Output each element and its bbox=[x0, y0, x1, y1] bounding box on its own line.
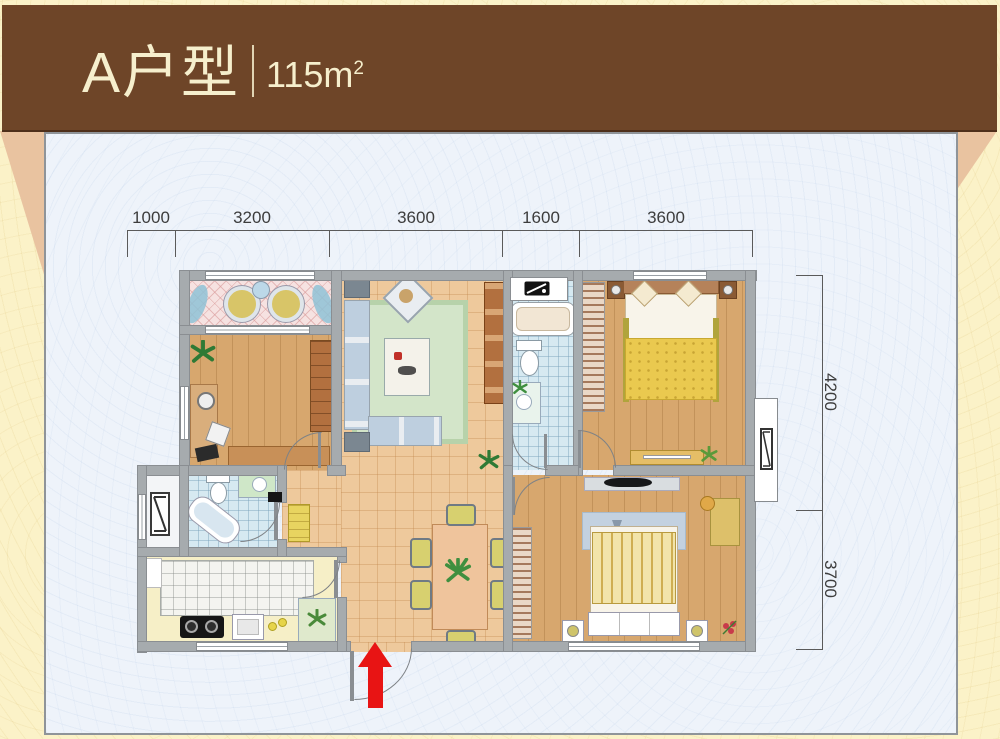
dim-tick bbox=[175, 230, 176, 257]
loveseat bbox=[368, 416, 442, 446]
armchair-pillow bbox=[399, 289, 413, 303]
wall bbox=[332, 271, 341, 475]
sofa-row bbox=[344, 300, 370, 430]
window bbox=[180, 386, 189, 440]
dim-tick bbox=[329, 230, 330, 257]
coffee-table-item bbox=[394, 352, 402, 360]
nightstand bbox=[686, 620, 708, 642]
wall bbox=[328, 466, 345, 475]
dim-tick bbox=[752, 230, 753, 257]
balcony-chair bbox=[268, 286, 304, 322]
wall bbox=[504, 271, 512, 475]
wall bbox=[278, 540, 286, 556]
area-label: 115m2 bbox=[266, 54, 364, 96]
sink-basin bbox=[516, 394, 532, 410]
title-divider bbox=[252, 45, 254, 97]
balcony-door-window bbox=[205, 326, 310, 334]
ac-unit-icon bbox=[150, 492, 170, 536]
washer-icon bbox=[524, 281, 550, 296]
bed-footboard bbox=[588, 612, 680, 636]
dining-chair bbox=[410, 580, 432, 610]
second-wardrobe bbox=[509, 527, 532, 639]
bathtub-inner bbox=[516, 307, 570, 331]
dim-tick bbox=[796, 510, 822, 511]
master-tv-stand bbox=[630, 450, 704, 465]
kitchen-unit bbox=[144, 558, 162, 588]
shoe-cabinet bbox=[288, 504, 310, 542]
wall bbox=[138, 466, 282, 475]
ribbon-fold-right bbox=[956, 131, 997, 191]
wall bbox=[180, 466, 188, 556]
bathtub bbox=[511, 302, 575, 336]
wall bbox=[504, 466, 512, 651]
dining-chair bbox=[446, 504, 476, 526]
wall bbox=[180, 271, 189, 475]
balcony-table bbox=[252, 281, 270, 299]
second-bed bbox=[560, 512, 708, 640]
kitchen-plant-stand bbox=[298, 598, 336, 644]
fruit bbox=[268, 622, 277, 631]
desk-lamp bbox=[700, 496, 715, 511]
side-table bbox=[344, 280, 370, 298]
floorplan-page: A户型 115m2 1000 3200 3600 1600 3600 4200 … bbox=[0, 0, 1000, 739]
lamp bbox=[567, 625, 579, 637]
dining-plant-icon bbox=[444, 558, 472, 586]
plant-icon bbox=[190, 340, 216, 366]
bed-blanket bbox=[625, 338, 717, 400]
tv-icon bbox=[604, 478, 652, 487]
entry-arrow-icon bbox=[358, 642, 392, 667]
bed-blanket-striped bbox=[592, 532, 676, 604]
fruit bbox=[278, 618, 287, 627]
master-wardrobe bbox=[581, 282, 605, 412]
study-bookshelf bbox=[310, 340, 332, 432]
ribbon-fold-left bbox=[0, 131, 46, 281]
kitchen-sink bbox=[232, 614, 264, 640]
dim-label-3600b: 3600 bbox=[636, 208, 696, 228]
kitchen-counter-top bbox=[160, 560, 314, 616]
window bbox=[138, 494, 146, 540]
burner bbox=[205, 620, 218, 633]
dim-label-3600a: 3600 bbox=[386, 208, 446, 228]
dim-tick bbox=[127, 230, 128, 257]
wall bbox=[138, 548, 346, 556]
dim-label-3200: 3200 bbox=[222, 208, 282, 228]
dim-tick bbox=[796, 649, 822, 650]
side-table bbox=[344, 432, 370, 452]
wall bbox=[614, 466, 755, 475]
tv-stand-slot bbox=[643, 455, 691, 459]
page-title: A户型 bbox=[82, 27, 240, 109]
plant-icon bbox=[478, 450, 500, 472]
plant-icon bbox=[512, 380, 528, 396]
plant-icon bbox=[700, 446, 718, 464]
lamp bbox=[691, 625, 703, 637]
dim-top-line bbox=[127, 230, 753, 231]
tv-cabinet bbox=[484, 282, 504, 404]
stove bbox=[180, 616, 224, 638]
wall bbox=[546, 466, 578, 475]
wall bbox=[338, 598, 346, 651]
flower-icon bbox=[720, 618, 740, 638]
sink-basin bbox=[252, 477, 267, 492]
dim-label-4200: 4200 bbox=[820, 362, 840, 422]
dim-tick bbox=[579, 230, 580, 257]
intercom-icon bbox=[268, 492, 282, 502]
dim-tick bbox=[796, 275, 822, 276]
dim-label-1000: 1000 bbox=[121, 208, 181, 228]
window bbox=[633, 271, 707, 280]
dim-label-1600: 1600 bbox=[511, 208, 571, 228]
window bbox=[205, 271, 315, 280]
master-bed bbox=[623, 280, 719, 402]
nightstand bbox=[562, 620, 584, 642]
coffee-table-item bbox=[398, 366, 416, 375]
dim-tick bbox=[502, 230, 503, 257]
ac-unit-icon bbox=[760, 428, 773, 470]
window bbox=[196, 642, 288, 651]
dim-label-3700: 3700 bbox=[820, 549, 840, 609]
title-banner: A户型 115m2 bbox=[2, 5, 997, 132]
dining-chair bbox=[410, 538, 432, 568]
toilet-bowl bbox=[520, 350, 539, 376]
lamp bbox=[611, 285, 621, 295]
wall bbox=[412, 642, 512, 651]
burner bbox=[185, 620, 198, 633]
sink-basin bbox=[237, 619, 259, 635]
nightstand bbox=[719, 281, 737, 299]
desk-clock bbox=[197, 392, 215, 410]
window bbox=[568, 642, 700, 651]
entry-arrow-stem bbox=[368, 666, 383, 708]
lamp bbox=[723, 285, 733, 295]
